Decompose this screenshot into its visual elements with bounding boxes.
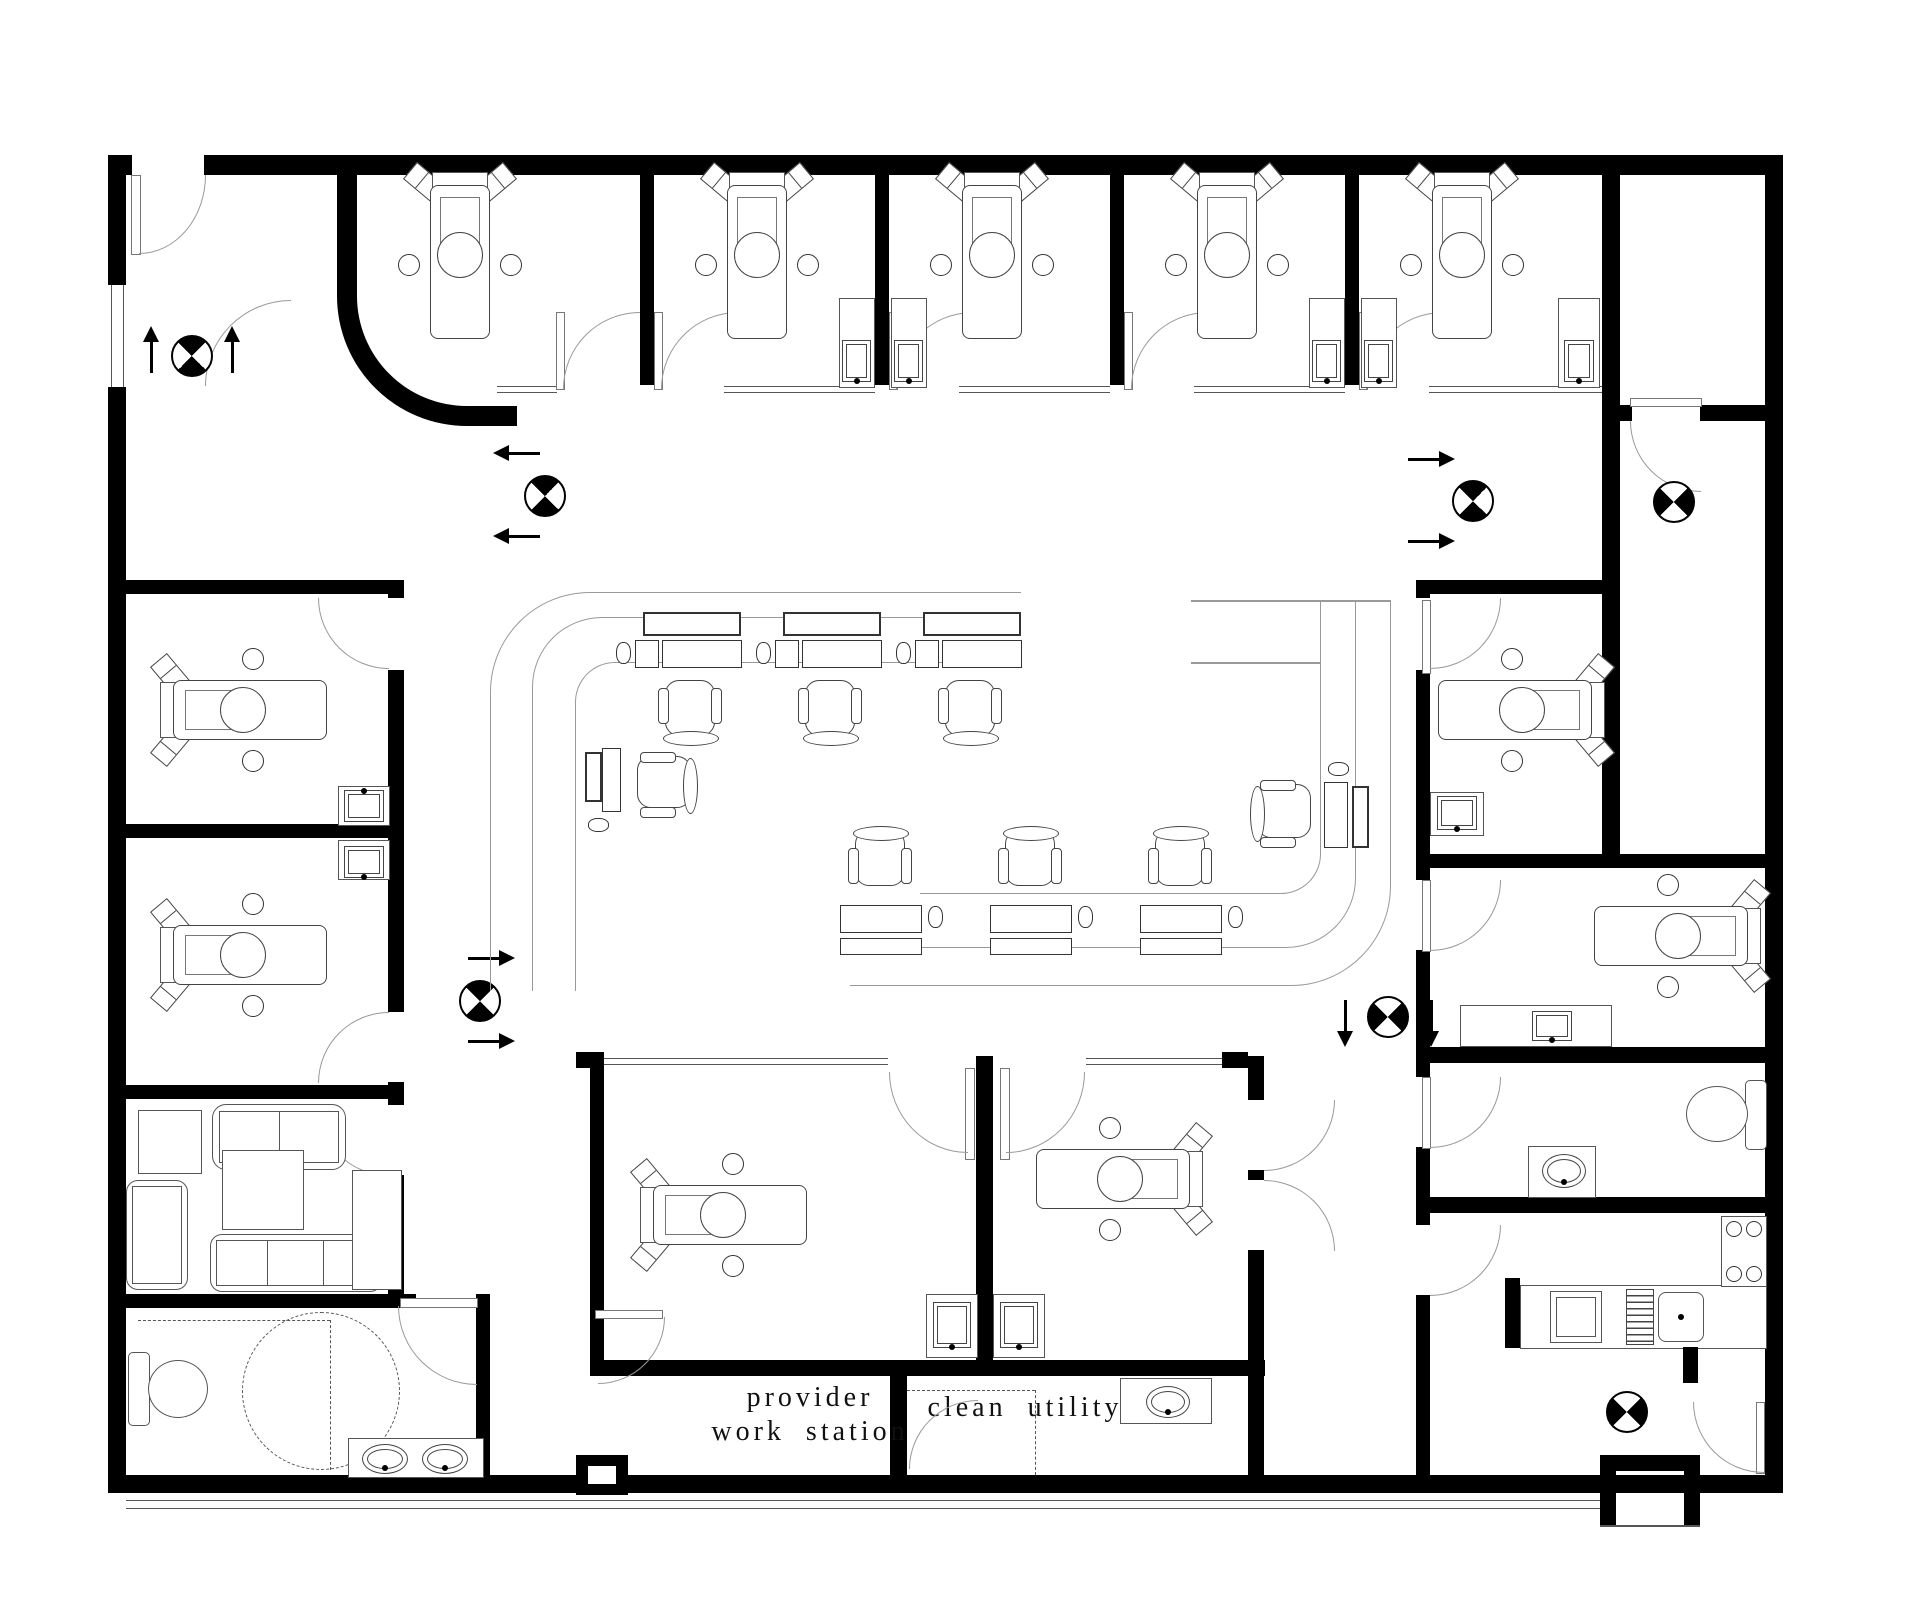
mouse-icon bbox=[756, 642, 771, 664]
door-arc bbox=[1630, 421, 1701, 492]
desk-chair bbox=[658, 676, 722, 746]
stool bbox=[242, 750, 264, 772]
desk-chair bbox=[798, 676, 862, 746]
wall bbox=[1416, 1047, 1765, 1063]
desk-chair bbox=[998, 826, 1062, 896]
desk-chair bbox=[630, 752, 698, 818]
stool bbox=[242, 995, 264, 1017]
stool bbox=[1501, 648, 1523, 670]
exam-chair bbox=[1400, 172, 1524, 342]
door-arc bbox=[318, 1012, 389, 1083]
desk-chair bbox=[1250, 780, 1318, 848]
dashed-line bbox=[907, 1390, 1035, 1391]
mouse-icon bbox=[616, 642, 631, 664]
sliding-partition bbox=[604, 1058, 888, 1065]
counter-edge bbox=[1191, 600, 1390, 602]
stool bbox=[1099, 1117, 1121, 1139]
up-arrow-icon bbox=[231, 333, 234, 373]
burner bbox=[1746, 1266, 1762, 1282]
cpu-icon bbox=[840, 938, 922, 955]
chair-back bbox=[683, 758, 698, 814]
chair-seat bbox=[945, 680, 995, 736]
stool bbox=[242, 648, 264, 670]
headrest bbox=[1204, 232, 1250, 278]
up-arrow-icon bbox=[150, 333, 153, 373]
chair-arm bbox=[1260, 780, 1296, 791]
sink bbox=[1312, 340, 1341, 382]
keyboard-icon bbox=[942, 640, 1022, 668]
exam-chair bbox=[930, 172, 1054, 342]
wall bbox=[1248, 1056, 1264, 1100]
door-arc bbox=[1264, 1180, 1335, 1251]
survey-symbol-icon bbox=[1452, 480, 1494, 522]
headrest bbox=[1097, 1156, 1143, 1202]
stool bbox=[797, 254, 819, 276]
chair-arm bbox=[798, 688, 809, 724]
survey-symbol-icon bbox=[171, 335, 213, 377]
chair-seat bbox=[1257, 784, 1311, 838]
door-arc bbox=[563, 312, 640, 389]
mouse-icon bbox=[588, 818, 609, 832]
chair-arm bbox=[991, 688, 1002, 724]
chair-arm bbox=[1260, 837, 1296, 848]
wall bbox=[126, 824, 404, 838]
wall bbox=[388, 1082, 404, 1105]
stool bbox=[1165, 254, 1187, 276]
monitor-icon bbox=[643, 612, 741, 636]
coffee-table bbox=[222, 1150, 304, 1230]
dashed-line bbox=[330, 1320, 331, 1470]
door-arc bbox=[1693, 1402, 1764, 1473]
burner bbox=[1726, 1266, 1742, 1282]
stool bbox=[398, 254, 420, 276]
stool bbox=[1657, 976, 1679, 998]
door-arc bbox=[205, 300, 291, 386]
stool bbox=[930, 254, 952, 276]
stool bbox=[1267, 254, 1289, 276]
chair-arm bbox=[658, 688, 669, 724]
chair-back bbox=[663, 731, 719, 746]
mouse-icon bbox=[1328, 762, 1349, 776]
wall bbox=[1602, 175, 1620, 423]
right-arrow-icon bbox=[1408, 458, 1448, 461]
headrest bbox=[1439, 232, 1485, 278]
toilet-tank bbox=[128, 1352, 150, 1426]
wall bbox=[1222, 1052, 1248, 1068]
pillar bbox=[576, 1455, 628, 1495]
stool bbox=[1657, 874, 1679, 896]
down-arrow-icon bbox=[1430, 1000, 1433, 1040]
sofa bbox=[126, 1180, 188, 1290]
sink bbox=[1542, 1154, 1586, 1188]
exit-vestibule bbox=[1684, 1471, 1700, 1525]
stove bbox=[1721, 1216, 1767, 1287]
door-arc bbox=[139, 175, 206, 254]
chair-arm bbox=[640, 807, 676, 818]
wall bbox=[126, 580, 404, 594]
monitor-icon bbox=[585, 752, 602, 802]
keyboard-icon bbox=[662, 640, 742, 668]
drain bbox=[1678, 1314, 1684, 1320]
stool bbox=[1099, 1219, 1121, 1241]
right-arrow-icon bbox=[468, 1040, 508, 1043]
left-arrow-icon bbox=[500, 452, 540, 455]
mouse-icon bbox=[1228, 906, 1243, 928]
chair-back bbox=[853, 826, 909, 841]
headrest bbox=[700, 1192, 746, 1238]
exit-vestibule bbox=[1600, 1455, 1700, 1471]
exam-chair bbox=[695, 172, 819, 342]
exam-chair bbox=[398, 172, 522, 342]
chair-arm bbox=[1148, 848, 1159, 884]
survey-symbol-icon bbox=[1606, 1391, 1648, 1433]
chair-back bbox=[943, 731, 999, 746]
survey-symbol-icon bbox=[1653, 481, 1695, 523]
wall bbox=[1416, 580, 1430, 598]
room-label: provider bbox=[700, 1382, 920, 1414]
door-arc bbox=[398, 1306, 477, 1385]
chair-seat bbox=[665, 680, 715, 736]
oven-door bbox=[1556, 1297, 1596, 1337]
exam-chair bbox=[1033, 1117, 1203, 1241]
sink bbox=[933, 1302, 971, 1348]
desk-chair bbox=[848, 826, 912, 896]
exterior-walk-line bbox=[126, 1500, 1606, 1509]
chair-arm bbox=[998, 848, 1009, 884]
dish-rack bbox=[1626, 1289, 1654, 1345]
sink bbox=[894, 340, 923, 382]
sink bbox=[1564, 340, 1594, 382]
door-arc bbox=[1430, 1077, 1501, 1148]
wall bbox=[1700, 405, 1765, 421]
survey-symbol-icon bbox=[524, 475, 566, 517]
wall bbox=[1248, 1170, 1264, 1180]
wall bbox=[108, 155, 132, 175]
dashed-line bbox=[1035, 1390, 1036, 1475]
wall bbox=[976, 1056, 993, 1376]
monitor-icon bbox=[1352, 786, 1369, 848]
armchair bbox=[138, 1110, 202, 1174]
exam-chair bbox=[1165, 172, 1289, 342]
wall bbox=[108, 387, 126, 1493]
sink bbox=[1532, 1011, 1572, 1041]
wall bbox=[388, 670, 404, 1012]
monitor-icon bbox=[783, 612, 881, 636]
wall bbox=[126, 1085, 404, 1099]
mouse-icon bbox=[896, 642, 911, 664]
cushion-divider bbox=[267, 1240, 268, 1286]
toilet-bowl bbox=[148, 1360, 208, 1418]
kitchen-sink bbox=[1658, 1292, 1704, 1342]
keyboard-icon bbox=[990, 905, 1072, 933]
cabinet bbox=[352, 1170, 402, 1290]
sink bbox=[1437, 796, 1477, 830]
mouse-icon bbox=[1078, 906, 1093, 928]
cushion-divider bbox=[323, 1240, 324, 1286]
oven bbox=[1550, 1291, 1602, 1343]
chair-seat bbox=[805, 680, 855, 736]
wall bbox=[875, 175, 889, 385]
exam-chair bbox=[160, 893, 330, 1017]
exam-chair bbox=[640, 1153, 810, 1277]
monitor-icon bbox=[923, 612, 1021, 636]
window bbox=[111, 285, 124, 387]
wall bbox=[1110, 175, 1124, 385]
desk-chair bbox=[938, 676, 1002, 746]
wall bbox=[126, 1294, 416, 1308]
wall bbox=[388, 580, 404, 598]
headrest bbox=[1655, 913, 1701, 959]
sink bbox=[842, 340, 871, 382]
headrest bbox=[1499, 687, 1545, 733]
wall bbox=[1345, 175, 1359, 385]
stool bbox=[722, 1255, 744, 1277]
toilet-bowl bbox=[1686, 1086, 1748, 1142]
door-arc bbox=[889, 1072, 968, 1153]
sink bbox=[344, 846, 384, 878]
desk-chair bbox=[1148, 826, 1212, 896]
chair-arm bbox=[1201, 848, 1212, 884]
chair-back bbox=[803, 731, 859, 746]
chair-arm bbox=[848, 848, 859, 884]
headrest bbox=[969, 232, 1015, 278]
wall bbox=[1683, 1347, 1698, 1383]
cpu-icon bbox=[990, 938, 1072, 955]
burner bbox=[1726, 1221, 1742, 1237]
cpu-icon bbox=[1140, 938, 1222, 955]
stool bbox=[1502, 254, 1524, 276]
chair-back bbox=[1003, 826, 1059, 841]
door-arc bbox=[1264, 1100, 1335, 1171]
stool bbox=[242, 893, 264, 915]
wall bbox=[1505, 1278, 1520, 1348]
down-arrow-icon bbox=[1344, 1000, 1347, 1040]
wall bbox=[1765, 175, 1783, 1493]
sink bbox=[344, 790, 384, 822]
keyboard-icon bbox=[1140, 905, 1222, 933]
stool bbox=[1032, 254, 1054, 276]
door-leaf bbox=[1630, 398, 1702, 407]
keyboard-icon bbox=[840, 905, 922, 933]
sink bbox=[1146, 1386, 1190, 1418]
sofa-cushions bbox=[132, 1186, 182, 1284]
stool bbox=[1501, 750, 1523, 772]
sink bbox=[1364, 340, 1393, 382]
chair-arm bbox=[938, 688, 949, 724]
cpu-icon bbox=[915, 640, 939, 668]
cpu-icon bbox=[602, 748, 621, 812]
wall bbox=[1416, 1147, 1430, 1225]
counter-edge bbox=[1191, 662, 1320, 664]
wall bbox=[1416, 670, 1430, 880]
stool bbox=[695, 254, 717, 276]
door-arc bbox=[1430, 880, 1501, 951]
dashed-line bbox=[138, 1320, 330, 1321]
wall bbox=[1416, 1295, 1430, 1475]
cpu-icon bbox=[1324, 782, 1348, 848]
chair-arm bbox=[1051, 848, 1062, 884]
sliding-partition bbox=[959, 386, 1110, 393]
wall bbox=[1620, 405, 1632, 421]
sink bbox=[1000, 1302, 1038, 1348]
headrest bbox=[220, 932, 266, 978]
right-arrow-icon bbox=[1408, 540, 1448, 543]
chair-arm bbox=[640, 752, 676, 763]
survey-symbol-icon bbox=[1367, 996, 1409, 1038]
cpu-icon bbox=[635, 640, 659, 668]
headrest bbox=[734, 232, 780, 278]
exam-chair bbox=[1435, 648, 1605, 772]
exam-chair bbox=[1591, 874, 1761, 998]
chair-back bbox=[1153, 826, 1209, 841]
exam-chair bbox=[160, 648, 330, 772]
wall bbox=[1416, 1197, 1765, 1213]
headrest bbox=[220, 687, 266, 733]
left-arrow-icon bbox=[500, 535, 540, 538]
wall bbox=[590, 1360, 1265, 1376]
chair-arm bbox=[901, 848, 912, 884]
chair-arm bbox=[711, 688, 722, 724]
wall bbox=[108, 175, 126, 285]
stool bbox=[500, 254, 522, 276]
chair-arm bbox=[851, 688, 862, 724]
toilet-tank bbox=[1745, 1080, 1767, 1150]
sink bbox=[422, 1444, 468, 1474]
door-arc bbox=[1430, 1225, 1501, 1296]
sink bbox=[362, 1444, 408, 1474]
headrest bbox=[437, 232, 483, 278]
sliding-partition bbox=[1086, 1058, 1222, 1065]
stool bbox=[722, 1153, 744, 1175]
cpu-icon bbox=[775, 640, 799, 668]
wall bbox=[640, 175, 654, 385]
mouse-icon bbox=[928, 906, 943, 928]
pillar-inset bbox=[588, 1466, 616, 1484]
wall bbox=[1602, 423, 1620, 868]
exit-threshold bbox=[1600, 1525, 1700, 1527]
chair-back bbox=[1250, 786, 1265, 842]
sliding-partition bbox=[497, 386, 557, 393]
exit-vestibule bbox=[1600, 1471, 1616, 1525]
wall bbox=[1416, 854, 1765, 868]
burner bbox=[1746, 1221, 1762, 1237]
wall bbox=[1416, 580, 1602, 594]
keyboard-icon bbox=[802, 640, 882, 668]
stool bbox=[1400, 254, 1422, 276]
clinic-floor-plan: provider work station clean utility bbox=[0, 0, 1920, 1605]
room-label: work station bbox=[685, 1416, 935, 1448]
